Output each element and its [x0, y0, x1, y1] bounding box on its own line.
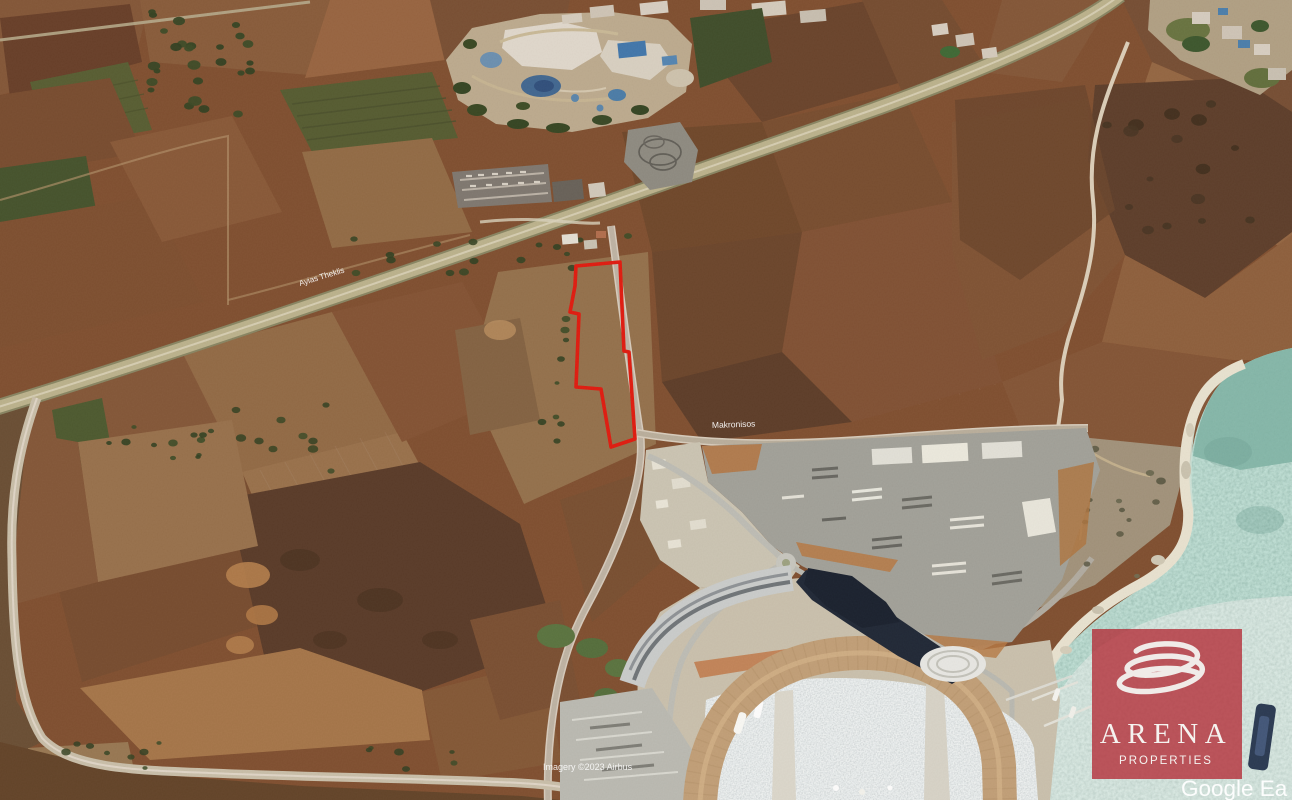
svg-text:Imagery ©2023 Airbus: Imagery ©2023 Airbus [543, 762, 633, 772]
svg-text:Google Ea: Google Ea [1181, 776, 1288, 800]
svg-text:PROPERTIES: PROPERTIES [1119, 755, 1213, 767]
svg-text:ARENA: ARENA [1100, 718, 1232, 750]
